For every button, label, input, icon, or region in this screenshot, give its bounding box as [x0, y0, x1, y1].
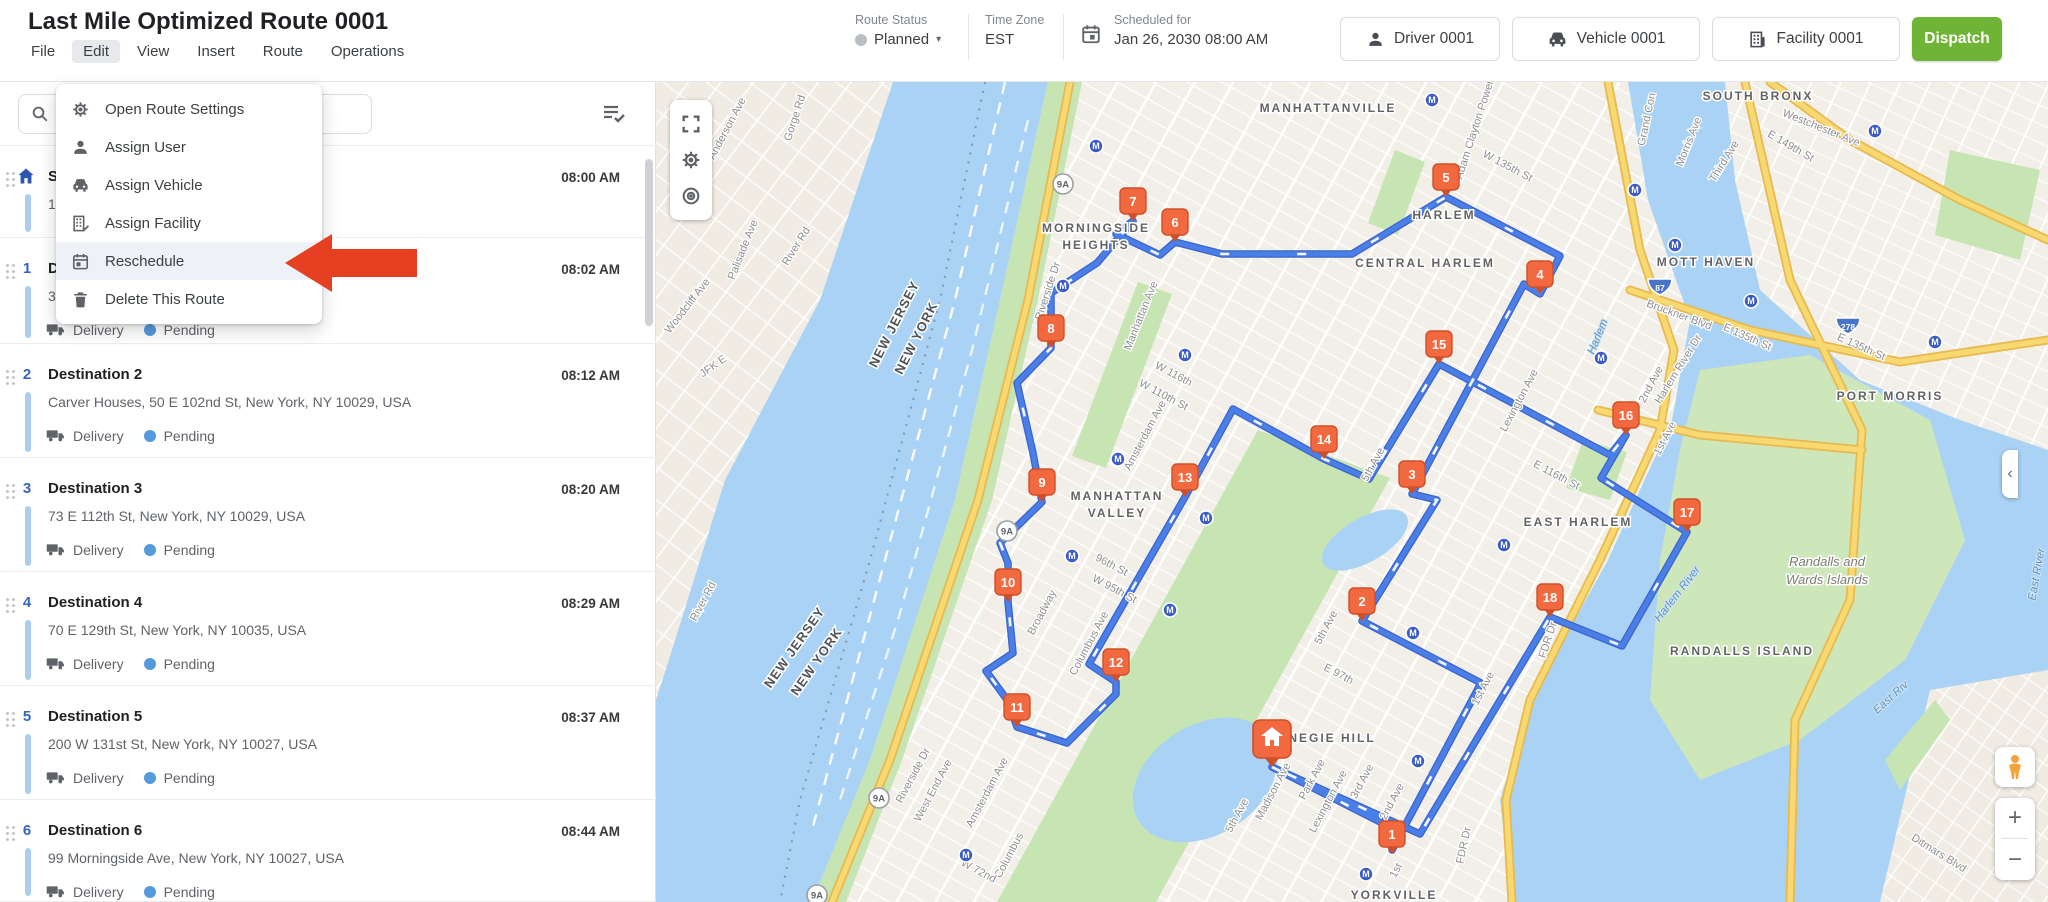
driver-user-icon: [1366, 30, 1385, 49]
scheduled-value: Jan 26, 2030 08:00 AM: [1114, 31, 1268, 48]
stop-status: Delivery Pending: [46, 540, 215, 559]
stop-title: Destination 4: [48, 594, 142, 611]
svg-text:M: M: [1428, 95, 1436, 105]
menubar-item-view[interactable]: View: [126, 40, 180, 63]
svg-text:9A: 9A: [1057, 180, 1069, 191]
locate-target-icon[interactable]: [680, 185, 702, 207]
stop-time: 08:12 AM: [561, 368, 620, 383]
vehicle-car-icon: [1547, 29, 1568, 50]
map-label: HARLEM: [1412, 208, 1475, 222]
subway-station-icon: M: [1089, 139, 1103, 153]
delivery-truck-icon: [46, 540, 65, 559]
map-label: MANHATTANVILLE: [1260, 101, 1397, 115]
header-bar: Last Mile Optimized Route 0001 FileEditV…: [0, 0, 2048, 82]
svg-text:M: M: [1871, 126, 1879, 136]
facility-building-icon: [1748, 30, 1767, 49]
route-status-dropdown[interactable]: Planned ▾: [855, 31, 941, 48]
stop-row-5[interactable]: 5 Destination 5 08:37 AM 200 W 131st St,…: [0, 686, 656, 800]
stop-row-4[interactable]: 4 Destination 4 08:29 AM 70 E 129th St, …: [0, 572, 656, 686]
status-pending: Pending: [164, 428, 215, 444]
status-dot: [855, 34, 867, 46]
status-pending: Pending: [164, 884, 215, 900]
svg-text:9: 9: [1038, 475, 1045, 490]
svg-text:11: 11: [1010, 700, 1024, 715]
stop-address: 73 E 112th St, New York, NY 10029, USA: [48, 508, 305, 524]
search-icon: [31, 105, 49, 123]
svg-text:M: M: [1059, 281, 1067, 291]
stop-number: 1: [16, 260, 38, 277]
pending-dot: [144, 324, 156, 336]
subway-station-icon: M: [1928, 335, 1942, 349]
stop-status: Delivery Pending: [46, 654, 215, 673]
facility-icon: [71, 214, 90, 233]
status-delivery: Delivery: [73, 770, 124, 786]
route-status-block: Route Status Planned ▾: [855, 13, 941, 48]
map-label: MOTT HAVEN: [1657, 255, 1755, 269]
svg-text:M: M: [962, 850, 970, 860]
time-zone-label: Time Zone: [985, 13, 1044, 27]
page-title: Last Mile Optimized Route 0001: [28, 8, 388, 36]
svg-text:15: 15: [1432, 337, 1446, 352]
time-zone-value: EST: [985, 31, 1044, 48]
map-label: SOUTH BRONX: [1703, 89, 1814, 103]
status-delivery: Delivery: [73, 542, 124, 558]
svg-text:8: 8: [1047, 321, 1054, 336]
svg-text:5: 5: [1442, 170, 1449, 185]
svg-text:4: 4: [1536, 267, 1544, 282]
stop-time: 08:37 AM: [561, 710, 620, 725]
stop-title: Destination 3: [48, 480, 142, 497]
driver-button[interactable]: Driver 0001: [1340, 17, 1500, 61]
stop-time: 08:00 AM: [561, 170, 620, 185]
subway-station-icon: M: [1411, 754, 1425, 768]
svg-text:M: M: [1114, 454, 1122, 464]
svg-text:13: 13: [1178, 470, 1192, 485]
trash-icon: [71, 290, 90, 309]
subway-station-icon: M: [959, 848, 973, 862]
road-shield-9A: 9A: [997, 521, 1017, 541]
app-window: MANHATTANVILLESOUTH BRONXMORNINGSIDEHEIG…: [0, 0, 2048, 902]
menu-item-label: Reschedule: [105, 253, 184, 270]
stop-time: 08:44 AM: [561, 824, 620, 839]
subway-station-icon: M: [1594, 351, 1608, 365]
status-pending: Pending: [164, 770, 215, 786]
gear-icon: [71, 100, 90, 119]
svg-text:9A: 9A: [811, 891, 823, 902]
collapse-panel-chevron[interactable]: ‹: [2002, 450, 2018, 498]
map-settings-gear-icon[interactable]: [680, 149, 702, 171]
subway-station-icon: M: [1868, 124, 1882, 138]
delivery-truck-icon: [46, 654, 65, 673]
calendar-icon: [71, 252, 90, 271]
svg-text:M: M: [1500, 540, 1508, 550]
pending-dot: [144, 544, 156, 556]
stop-time: 08:02 AM: [561, 262, 620, 277]
menu-item-label: Assign Vehicle: [105, 177, 203, 194]
svg-text:1: 1: [1388, 827, 1395, 842]
map-label: RANDALLS ISLAND: [1670, 644, 1814, 658]
menubar: FileEditViewInsertRouteOperations: [20, 40, 415, 63]
road-shield-9A: 9A: [1053, 174, 1073, 194]
subway-station-icon: M: [1163, 603, 1177, 617]
menu-item-assign-vehicle[interactable]: Assign Vehicle: [56, 166, 322, 204]
map-label: YORKVILLE: [1351, 888, 1438, 902]
route-connector-line: [25, 194, 31, 232]
map-label: PORT MORRIS: [1837, 389, 1944, 403]
route-connector-line: [25, 734, 31, 794]
stop-time: 08:29 AM: [561, 596, 620, 611]
stop-time: 08:20 AM: [561, 482, 620, 497]
scheduled-block: Scheduled for Jan 26, 2030 08:00 AM: [1080, 13, 1268, 48]
stop-number: 3: [16, 480, 38, 497]
svg-text:M: M: [1597, 353, 1605, 363]
chevron-down-icon: ▾: [936, 34, 941, 45]
dispatch-button[interactable]: Dispatch: [1912, 17, 2002, 61]
svg-text:18: 18: [1543, 590, 1557, 605]
svg-text:3: 3: [1408, 467, 1415, 482]
divider: [968, 14, 969, 60]
menu-item-label: Assign User: [105, 139, 186, 156]
svg-text:M: M: [1631, 185, 1639, 195]
pending-dot: [144, 430, 156, 442]
route-status-label: Route Status: [855, 13, 941, 27]
stop-title: Destination 2: [48, 366, 142, 383]
svg-text:M: M: [1409, 628, 1417, 638]
menubar-item-file[interactable]: File: [20, 40, 66, 63]
svg-text:12: 12: [1109, 655, 1123, 670]
filter-list-icon[interactable]: [598, 100, 630, 128]
vehicle-icon: [71, 176, 90, 195]
svg-text:2: 2: [1358, 594, 1365, 609]
menubar-item-operations[interactable]: Operations: [320, 40, 415, 63]
zoom-in-button[interactable]: +: [1995, 798, 2035, 838]
stop-status: Delivery Pending: [46, 426, 215, 445]
stop-number: 2: [16, 366, 38, 383]
status-pending: Pending: [164, 542, 215, 558]
map-label: MANHATTAN: [1071, 489, 1164, 503]
svg-text:M: M: [1671, 240, 1679, 250]
map-control-panel: [670, 100, 712, 220]
subway-station-icon: M: [1359, 867, 1373, 881]
scheduled-label: Scheduled for: [1114, 13, 1268, 27]
facility-button[interactable]: Facility 0001: [1712, 17, 1900, 61]
route-connector-line: [25, 506, 31, 566]
menu-item-label: Assign Facility: [105, 215, 201, 232]
annotation-arrow: [280, 228, 420, 298]
stop-row-6[interactable]: 6 Destination 6 08:44 AM 99 Morningside …: [0, 800, 656, 902]
svg-text:17: 17: [1680, 505, 1694, 520]
delivery-truck-icon: [46, 882, 65, 901]
svg-text:14: 14: [1317, 432, 1332, 447]
pending-dot: [144, 886, 156, 898]
delivery-truck-icon: [46, 768, 65, 787]
zoom-out-button[interactable]: −: [1995, 840, 2035, 880]
subway-station-icon: M: [1497, 538, 1511, 552]
stop-number: 5: [16, 708, 38, 725]
stop-status: Delivery Pending: [46, 768, 215, 787]
route-connector-line: [25, 286, 31, 338]
pending-dot: [144, 658, 156, 670]
subway-station-icon: M: [1744, 294, 1758, 308]
pending-dot: [144, 772, 156, 784]
stop-address: 200 W 131st St, New York, NY 10027, USA: [48, 736, 317, 752]
stop-status: Delivery Pending: [46, 882, 215, 901]
menu-item-assign-user[interactable]: Assign User: [56, 128, 322, 166]
route-connector-line: [25, 392, 31, 452]
stop-address: Carver Houses, 50 E 102nd St, New York, …: [48, 394, 411, 410]
map-label: EAST HARLEM: [1524, 515, 1633, 529]
road-shield-9A: 9A: [869, 788, 889, 808]
map-label: VALLEY: [1088, 506, 1146, 520]
menubar-item-insert[interactable]: Insert: [186, 40, 246, 63]
svg-text:M: M: [1931, 337, 1939, 347]
subway-station-icon: M: [1178, 348, 1192, 362]
subway-station-icon: M: [1111, 452, 1125, 466]
svg-text:278: 278: [1841, 322, 1855, 332]
stop-number: 6: [16, 822, 38, 839]
map-label: CENTRAL HARLEM: [1355, 256, 1495, 270]
route-connector-line: [25, 848, 31, 896]
subway-station-icon: M: [1065, 549, 1079, 563]
status-delivery: Delivery: [73, 656, 124, 672]
divider: [1063, 14, 1064, 60]
road-shield-9A: 9A: [807, 885, 827, 902]
svg-text:M: M: [1747, 296, 1755, 306]
svg-text:M: M: [1068, 551, 1076, 561]
subway-station-icon: M: [1406, 626, 1420, 640]
menu-item-label: Open Route Settings: [105, 101, 244, 118]
route-status-value: Planned: [874, 31, 929, 48]
svg-text:9A: 9A: [873, 794, 885, 805]
svg-text:10: 10: [1001, 575, 1015, 590]
zoom-controls: + −: [1995, 798, 2035, 880]
map-label: Wards Islands: [1786, 572, 1869, 587]
time-zone-block: Time Zone EST: [985, 13, 1044, 48]
status-delivery: Delivery: [73, 884, 124, 900]
status-delivery: Delivery: [73, 428, 124, 444]
svg-text:87: 87: [1655, 283, 1665, 293]
svg-text:M: M: [1414, 756, 1422, 766]
map-canvas[interactable]: MANHATTANVILLESOUTH BRONXMORNINGSIDEHEIG…: [656, 82, 2048, 902]
stop-row-3[interactable]: 3 Destination 3 08:20 AM 73 E 112th St, …: [0, 458, 656, 572]
vehicle-button[interactable]: Vehicle 0001: [1512, 17, 1700, 61]
svg-text:9A: 9A: [1001, 527, 1013, 538]
menu-item-open-route-settings[interactable]: Open Route Settings: [56, 90, 322, 128]
svg-text:16: 16: [1619, 408, 1633, 423]
svg-text:M: M: [1362, 869, 1370, 879]
svg-text:M: M: [1202, 513, 1210, 523]
stop-address: 70 E 129th St, New York, NY 10035, USA: [48, 622, 306, 638]
subway-station-icon: M: [1628, 183, 1642, 197]
home-icon: [16, 166, 36, 186]
stop-row-2[interactable]: 2 Destination 2 08:12 AM Carver Houses, …: [0, 344, 656, 458]
delivery-truck-icon: [46, 426, 65, 445]
stop-title: Destination 5: [48, 708, 142, 725]
map-label: HEIGHTS: [1062, 238, 1129, 252]
stop-address: 99 Morningside Ave, New York, NY 10027, …: [48, 850, 344, 866]
user-icon: [71, 138, 90, 157]
svg-text:7: 7: [1129, 194, 1136, 209]
fullscreen-icon[interactable]: [680, 113, 702, 135]
route-connector-line: [25, 620, 31, 680]
status-pending: Pending: [164, 656, 215, 672]
subway-station-icon: M: [1668, 238, 1682, 252]
stop-title: Destination 6: [48, 822, 142, 839]
svg-text:M: M: [1092, 141, 1100, 151]
svg-text:M: M: [1181, 350, 1189, 360]
calendar-icon: [1080, 19, 1102, 48]
subway-station-icon: M: [1425, 93, 1439, 107]
map-label: Randalls and: [1789, 554, 1866, 569]
subway-station-icon: M: [1199, 511, 1213, 525]
pegman-streetview[interactable]: [1995, 747, 2035, 787]
scrollbar[interactable]: [645, 159, 653, 326]
map-label: MORNINGSIDE: [1042, 221, 1150, 235]
subway-station-icon: M: [1056, 279, 1070, 293]
svg-text:M: M: [1166, 605, 1174, 615]
svg-text:6: 6: [1171, 215, 1178, 230]
menubar-item-edit[interactable]: Edit: [72, 40, 120, 63]
menu-item-label: Delete This Route: [105, 291, 225, 308]
stop-number: 4: [16, 594, 38, 611]
menubar-item-route[interactable]: Route: [252, 40, 314, 63]
